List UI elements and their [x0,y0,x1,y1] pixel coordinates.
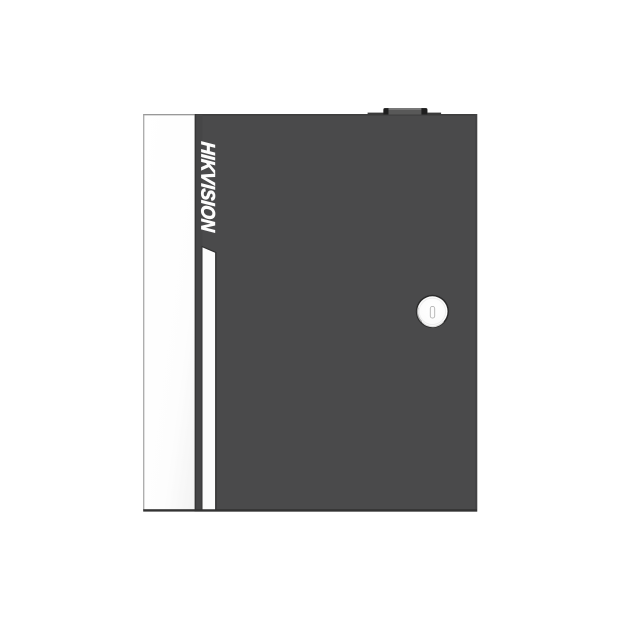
svg-text:HIKVISION: HIKVISION [196,141,217,234]
